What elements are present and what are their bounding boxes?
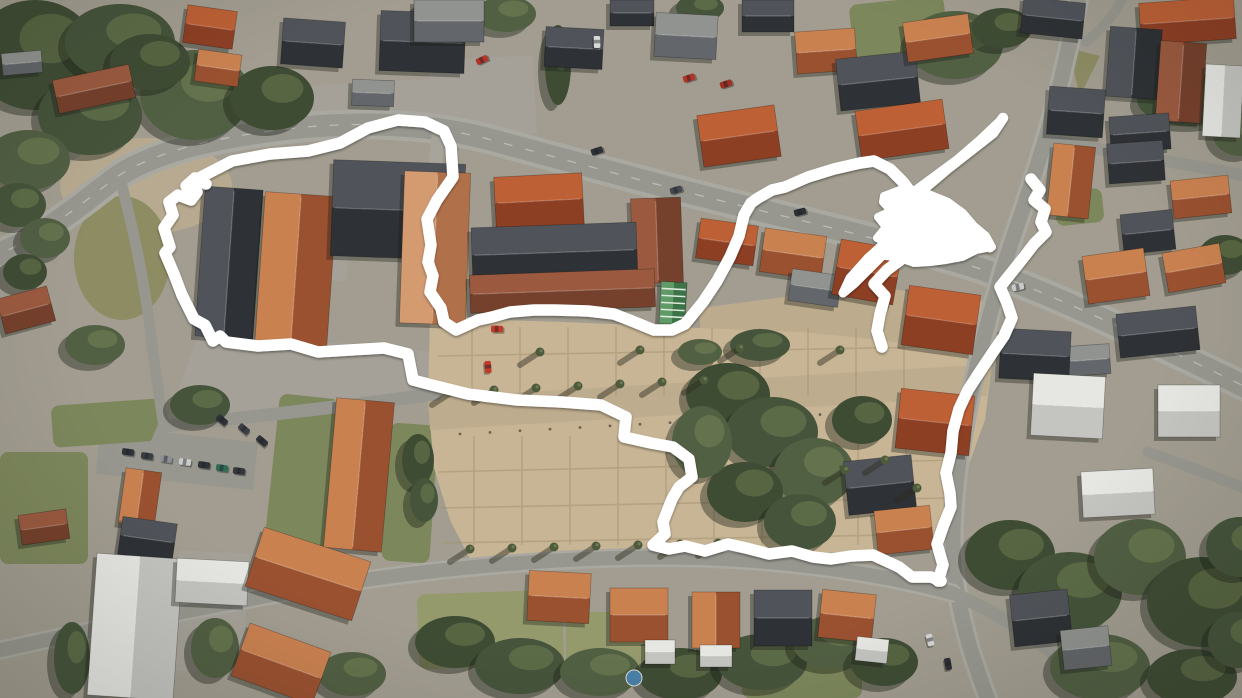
small-tree-highlight	[704, 377, 707, 380]
small-tree	[836, 346, 845, 355]
bollard-dot	[639, 423, 642, 426]
tree-highlight	[11, 189, 39, 209]
aerial-imagery-canvas[interactable]	[0, 0, 1242, 698]
tree-highlight	[88, 330, 118, 348]
small-tree-highlight	[596, 543, 599, 546]
tree-highlight	[855, 402, 885, 424]
small-tree-highlight	[885, 457, 888, 460]
building-dark-roof	[1107, 140, 1166, 184]
tree-highlight	[791, 501, 827, 526]
bollard-dot	[669, 421, 672, 424]
building-red-roof	[494, 173, 585, 230]
tree-highlight	[590, 654, 630, 676]
bollard-dot	[459, 433, 462, 436]
small-tree	[532, 384, 541, 393]
building-dark-roof	[118, 516, 178, 561]
building-white-roof	[1030, 373, 1105, 439]
small-tree	[841, 466, 850, 475]
building-dark-roof	[280, 18, 345, 68]
tree-highlight	[761, 406, 807, 438]
small-tree-highlight	[845, 467, 848, 470]
tree-highlight	[499, 1, 529, 17]
tree-highlight	[193, 390, 223, 408]
building-orange-roof	[818, 589, 877, 642]
building-gray-roof	[1, 50, 43, 75]
building-orange-roof	[610, 588, 668, 642]
building-dark-roof	[610, 0, 654, 26]
small-tree	[634, 541, 643, 550]
building-white-roof	[1081, 468, 1155, 518]
tree-highlight	[999, 529, 1044, 561]
bollard-dot	[519, 429, 522, 432]
building-white-roof	[700, 645, 732, 667]
building-gray-roof	[1060, 626, 1112, 671]
small-tree	[636, 346, 645, 355]
building-dark-roof	[1046, 86, 1105, 138]
building-gray-roof	[1067, 344, 1111, 377]
tree-highlight	[736, 470, 774, 497]
building-white-roof	[87, 553, 183, 698]
building-dark-roof	[1116, 306, 1200, 358]
building-dark-roof	[742, 0, 794, 32]
building-dark-roof	[1020, 0, 1085, 39]
grass-area	[51, 398, 166, 448]
tree-highlight	[262, 74, 304, 103]
building-brown-roof	[18, 509, 70, 545]
building-white-roof	[1158, 385, 1220, 437]
small-tree	[550, 543, 559, 552]
tree-highlight	[68, 631, 86, 663]
small-tree-highlight	[640, 347, 643, 350]
small-tree	[592, 542, 601, 551]
tree-highlight	[695, 415, 725, 447]
small-tree	[574, 382, 583, 391]
small-tree	[881, 456, 890, 465]
tree-highlight	[718, 371, 760, 400]
tree-highlight	[509, 645, 554, 670]
small-tree	[658, 378, 667, 387]
building-gray-roof	[414, 0, 484, 42]
small-tree-highlight	[512, 545, 515, 548]
small-tree-highlight	[917, 485, 920, 488]
building-white-roof	[175, 558, 249, 606]
pool-layer	[626, 670, 642, 686]
building-red-roof	[183, 5, 238, 50]
tree-highlight	[140, 41, 180, 66]
building-white-roof	[855, 636, 889, 663]
building-orange-roof	[194, 49, 242, 87]
small-tree	[466, 545, 475, 554]
building-red-roof	[697, 105, 781, 167]
small-tree	[508, 544, 517, 553]
building-orange-roof	[1046, 143, 1095, 219]
parked-car	[592, 36, 600, 50]
building-white-roof	[1202, 64, 1242, 138]
building-dark-roof	[195, 186, 263, 340]
bollard-dot	[549, 428, 552, 431]
small-tree-highlight	[540, 349, 543, 352]
building-orange-roof	[255, 192, 337, 349]
building-gray-roof	[352, 79, 395, 106]
small-tree-highlight	[740, 345, 743, 348]
tree-highlight	[20, 259, 42, 275]
small-tree-highlight	[620, 381, 623, 384]
tree-highlight	[209, 626, 233, 653]
small-tree	[913, 484, 922, 493]
tree-highlight	[1129, 529, 1175, 563]
satellite-map-view[interactable]	[0, 0, 1242, 698]
tree-highlight	[421, 484, 435, 504]
grass-area	[0, 452, 88, 564]
building-dark-roof	[1120, 209, 1176, 254]
small-tree	[736, 344, 745, 353]
tree-highlight	[39, 223, 64, 241]
bollard-dot	[579, 426, 582, 429]
building-orange-roof	[692, 592, 740, 648]
small-tree-highlight	[470, 546, 473, 549]
building-orange-roof	[1082, 248, 1150, 304]
bollard-dot	[489, 431, 492, 434]
tree-highlight	[18, 138, 60, 165]
building-orange-roof	[527, 570, 592, 623]
small-tree-highlight	[536, 385, 539, 388]
garden-pool	[626, 670, 642, 686]
small-tree-highlight	[840, 347, 843, 350]
building-white-roof	[645, 640, 675, 664]
bollard-dot	[609, 425, 612, 428]
small-tree-highlight	[578, 383, 581, 386]
small-tree	[536, 348, 545, 357]
bollard-dot	[819, 413, 822, 416]
small-tree-highlight	[554, 544, 557, 547]
tree-highlight	[695, 342, 717, 354]
small-tree-highlight	[494, 387, 497, 390]
small-tree	[616, 380, 625, 389]
building-gray-roof	[654, 12, 718, 59]
tree-highlight	[445, 623, 485, 646]
tree-highlight	[414, 441, 430, 464]
tree-highlight	[344, 658, 378, 678]
building-red-roof	[901, 285, 981, 354]
small-tree-highlight	[662, 379, 665, 382]
building-dark-roof	[754, 590, 812, 646]
building-brown-roof	[1155, 40, 1206, 123]
small-tree	[700, 376, 709, 385]
building-orange-roof	[1170, 175, 1232, 219]
building-orange-roof	[874, 505, 934, 555]
small-tree-highlight	[638, 542, 641, 545]
parked-car	[491, 326, 505, 334]
tree-highlight	[753, 333, 783, 347]
